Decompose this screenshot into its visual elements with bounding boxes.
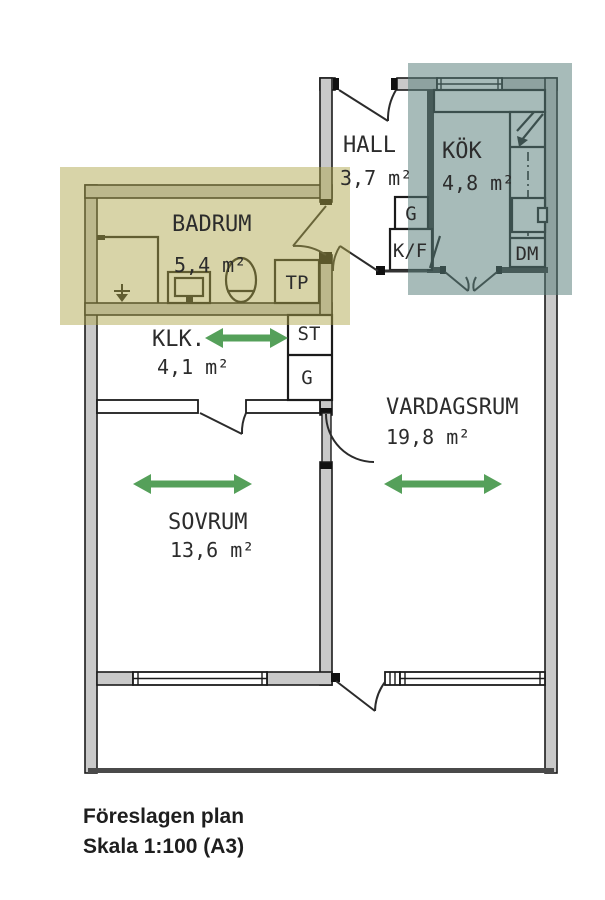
- balcony-edge: [88, 768, 554, 773]
- caption-line2: Skala 1:100 (A3): [83, 835, 244, 858]
- wall-klk-sovrum-left: [97, 400, 198, 413]
- caption-line1: Föreslagen plan: [83, 805, 244, 828]
- room-area-vardagsrum: 19,8 m²: [386, 425, 470, 449]
- label-dishwasher: DM: [516, 243, 539, 265]
- arrow-klk-icon: [205, 328, 288, 348]
- caption: Föreslagen plan Skala 1:100 (A3): [83, 805, 244, 858]
- room-label-hall: HALL: [343, 133, 396, 158]
- wall-klk-sovrum-right: [246, 400, 320, 413]
- room-label-badrum: BADRUM: [172, 212, 251, 237]
- room-label-sovrum: SOVRUM: [168, 510, 247, 535]
- room-label-vardagsrum: VARDAGSRUM: [386, 395, 518, 420]
- room-area-kok: 4,8 m²: [442, 171, 514, 195]
- floor-plan-drawing: HALL 3,7 m² KÖK 4,8 m² BADRUM 5,4 m² KLK…: [0, 0, 605, 900]
- floorplan-page: HALL 3,7 m² KÖK 4,8 m² BADRUM 5,4 m² KLK…: [0, 0, 605, 900]
- livingroom-window-frame: [385, 672, 400, 685]
- label-fridge-freezer: K/F: [393, 240, 427, 262]
- bedroom-window: [133, 672, 267, 685]
- label-wardrobe-hall: G: [405, 203, 416, 225]
- room-label-klk: KLK.: [152, 327, 205, 352]
- label-wardrobe-klk: G: [301, 367, 312, 389]
- wall-sovrum-vardagsrum-lower: [320, 462, 332, 685]
- arrow-sovrum-icon: [133, 474, 252, 494]
- room-area-hall: 3,7 m²: [340, 166, 412, 190]
- room-label-kok: KÖK: [442, 138, 482, 164]
- bedroom-livingroom-door: [320, 408, 374, 469]
- arrow-vardagsrum-icon: [384, 474, 502, 494]
- room-area-badrum: 5,4 m²: [174, 253, 246, 277]
- room-area-klk: 4,1 m²: [157, 355, 229, 379]
- entry-door: [333, 78, 397, 121]
- bathroom-highlight-overlay: [60, 167, 350, 325]
- wall-south-1: [97, 672, 133, 685]
- wall-south-2: [267, 672, 332, 685]
- balcony-door: [331, 673, 385, 711]
- room-area-sovrum: 13,6 m²: [170, 538, 254, 562]
- label-cleaning-closet: ST: [298, 323, 321, 345]
- bedroom-door: [200, 413, 246, 434]
- livingroom-window: [400, 672, 545, 685]
- label-tp-unit: TP: [286, 272, 309, 294]
